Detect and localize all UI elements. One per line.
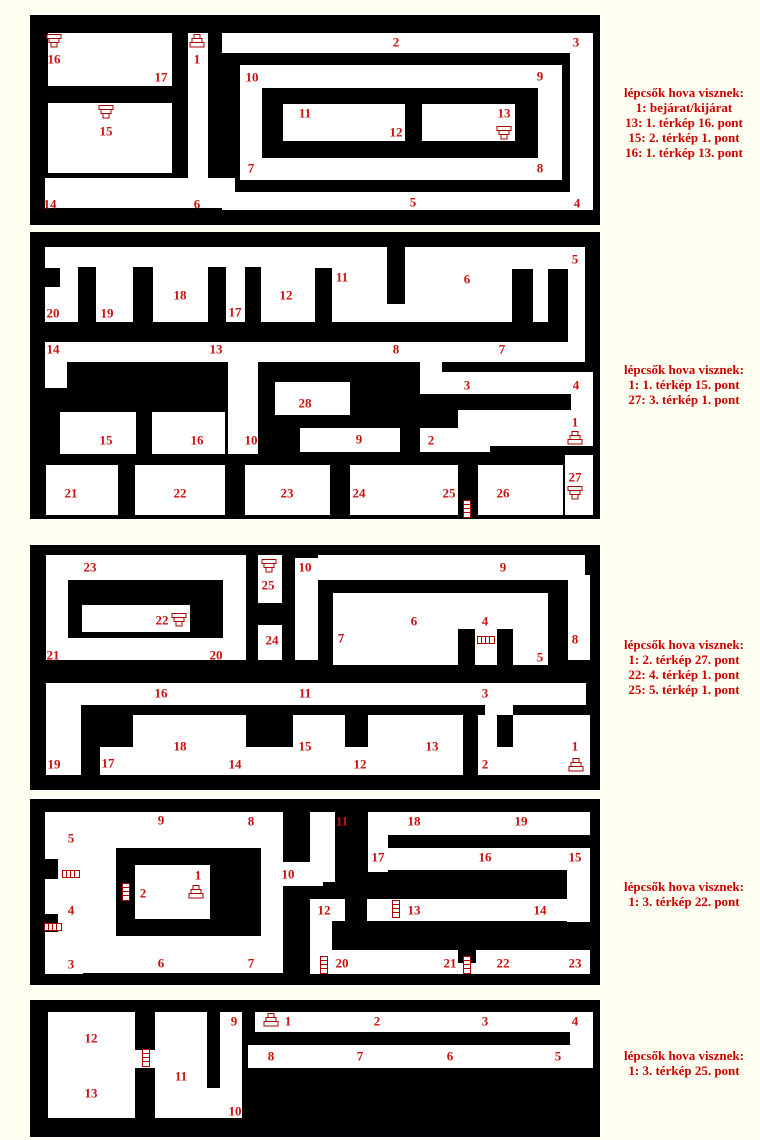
corridor-segment xyxy=(48,33,172,86)
corridor-segment xyxy=(46,555,246,580)
point-label-2: 2 xyxy=(374,1015,381,1028)
corridor-segment xyxy=(48,1012,135,1118)
door-v-icon xyxy=(463,500,471,518)
point-label-11: 11 xyxy=(299,107,311,120)
door-v-icon xyxy=(142,1049,150,1067)
corridor-segment xyxy=(45,812,83,974)
legend-block-4: lépcsők hova visznek:1: 3. térkép 22. po… xyxy=(608,879,760,909)
corridor-segment xyxy=(565,455,593,515)
legend-block-2: lépcsők hova visznek:1: 1. térkép 15. po… xyxy=(608,362,760,407)
point-label-1: 1 xyxy=(285,1015,292,1028)
point-label-2: 2 xyxy=(140,887,147,900)
point-label-17: 17 xyxy=(102,757,115,770)
legend-line: 1: 1. térkép 15. pont xyxy=(608,377,760,392)
point-label-7: 7 xyxy=(499,343,506,356)
point-label-9: 9 xyxy=(500,561,507,574)
point-label-12: 12 xyxy=(85,1032,98,1045)
wall-segment xyxy=(345,715,368,747)
point-label-13: 13 xyxy=(498,107,511,120)
wall-segment xyxy=(497,715,513,747)
corridor-segment xyxy=(333,593,548,665)
point-label-11: 11 xyxy=(336,815,348,828)
point-label-13: 13 xyxy=(408,904,421,917)
point-label-8: 8 xyxy=(572,633,579,646)
point-label-16: 16 xyxy=(48,53,61,66)
point-label-8: 8 xyxy=(393,343,400,356)
wall-segment xyxy=(315,268,332,322)
stairs-up-icon xyxy=(567,431,584,445)
stairs-down-icon xyxy=(46,34,63,48)
legend-line: lépcsők hova visznek: xyxy=(608,879,760,894)
corridor-segment xyxy=(222,33,593,53)
point-label-17: 17 xyxy=(155,71,168,84)
legend-line: lépcsők hova visznek: xyxy=(608,85,760,100)
legend-line: 16: 1. térkép 13. pont xyxy=(608,145,760,160)
point-label-13: 13 xyxy=(210,343,223,356)
point-label-10: 10 xyxy=(229,1105,242,1118)
stairs-down-icon xyxy=(261,559,278,573)
door-v-icon xyxy=(463,956,471,974)
wall-segment xyxy=(133,267,153,322)
map-panel-3: 2325102221202497645816113191718141512132… xyxy=(30,545,600,790)
door-h-icon xyxy=(62,870,80,878)
corridor-segment xyxy=(45,362,67,388)
wall-segment xyxy=(548,269,568,322)
corridor-segment xyxy=(568,320,585,344)
point-label-10: 10 xyxy=(299,561,312,574)
corridor-segment xyxy=(240,158,562,180)
point-label-15: 15 xyxy=(100,434,113,447)
map-panel-4: 5984367121011181917161512131420212223 xyxy=(30,799,600,985)
point-label-3: 3 xyxy=(482,687,489,700)
point-label-10: 10 xyxy=(245,434,258,447)
corridor-segment xyxy=(570,33,593,210)
point-label-5: 5 xyxy=(572,253,579,266)
point-label-4: 4 xyxy=(574,197,581,210)
point-label-12: 12 xyxy=(318,904,331,917)
legend-line: 15: 2. térkép 1. pont xyxy=(608,130,760,145)
point-label-15: 15 xyxy=(569,851,582,864)
door-h-icon xyxy=(44,923,62,931)
point-label-8: 8 xyxy=(537,162,544,175)
door-v-icon xyxy=(122,883,130,901)
corridor-segment xyxy=(222,192,592,210)
point-label-4: 4 xyxy=(68,904,75,917)
legend-line: 1: bejárat/kijárat xyxy=(608,100,760,115)
wall-segment xyxy=(208,267,226,322)
stairs-up-icon xyxy=(568,758,585,772)
point-label-16: 16 xyxy=(479,851,492,864)
point-label-23: 23 xyxy=(281,487,294,500)
point-label-9: 9 xyxy=(231,1015,238,1028)
point-label-21: 21 xyxy=(65,487,78,500)
point-label-19: 19 xyxy=(515,815,528,828)
wall-segment xyxy=(38,268,60,287)
corridor-segment xyxy=(240,65,562,88)
point-label-18: 18 xyxy=(174,289,187,302)
point-label-22: 22 xyxy=(174,487,187,500)
point-label-2: 2 xyxy=(428,434,435,447)
point-label-7: 7 xyxy=(357,1050,364,1063)
wall-segment xyxy=(458,629,475,665)
stairs-down-icon xyxy=(171,613,188,627)
corridor-segment xyxy=(46,465,118,515)
corridor-segment xyxy=(275,382,350,415)
legend-line: 27: 3. térkép 1. pont xyxy=(608,392,760,407)
point-label-12: 12 xyxy=(390,126,403,139)
point-label-13: 13 xyxy=(85,1087,98,1100)
point-label-14: 14 xyxy=(229,758,242,771)
point-label-1: 1 xyxy=(572,416,579,429)
corridor-segment xyxy=(46,683,586,705)
point-label-24: 24 xyxy=(353,487,366,500)
point-label-9: 9 xyxy=(537,70,544,83)
legend-line: 25: 5. térkép 1. pont xyxy=(608,682,760,697)
point-label-3: 3 xyxy=(573,36,580,49)
point-label-25: 25 xyxy=(262,579,275,592)
point-label-23: 23 xyxy=(84,561,97,574)
point-label-9: 9 xyxy=(356,433,363,446)
point-label-20: 20 xyxy=(47,307,60,320)
map-panel-2: 2019181712116514138728151610923412122232… xyxy=(30,232,600,519)
stairs-up-icon xyxy=(189,34,206,48)
point-label-21: 21 xyxy=(47,649,60,662)
point-label-6: 6 xyxy=(194,198,201,211)
point-label-11: 11 xyxy=(175,1070,187,1083)
legend-line: 13: 1. térkép 16. pont xyxy=(608,115,760,130)
point-label-16: 16 xyxy=(191,434,204,447)
point-label-6: 6 xyxy=(158,957,165,970)
point-label-19: 19 xyxy=(48,758,61,771)
wall-segment xyxy=(345,899,367,921)
stairs-up-icon xyxy=(263,1013,280,1027)
legend-block-3: lépcsők hova visznek:1: 2. térkép 27. po… xyxy=(608,637,760,697)
point-label-2: 2 xyxy=(393,36,400,49)
point-label-4: 4 xyxy=(572,1015,579,1028)
corridor-segment xyxy=(420,372,593,394)
legend-line: 22: 4. térkép 1. pont xyxy=(608,667,760,682)
point-label-3: 3 xyxy=(482,1015,489,1028)
point-label-15: 15 xyxy=(299,740,312,753)
point-label-5: 5 xyxy=(537,651,544,664)
corridor-segment xyxy=(60,412,136,454)
point-label-21: 21 xyxy=(444,957,457,970)
wall-segment xyxy=(497,629,513,665)
point-label-17: 17 xyxy=(372,851,385,864)
point-label-6: 6 xyxy=(411,615,418,628)
wall-segment xyxy=(387,247,405,304)
wall-segment xyxy=(512,269,533,322)
point-label-18: 18 xyxy=(174,740,187,753)
point-label-4: 4 xyxy=(482,615,489,628)
point-label-14: 14 xyxy=(534,904,547,917)
point-label-24: 24 xyxy=(266,634,279,647)
point-label-4: 4 xyxy=(573,379,580,392)
point-label-8: 8 xyxy=(248,815,255,828)
legend-line: lépcsők hova visznek: xyxy=(608,1048,760,1063)
door-h-icon xyxy=(477,636,495,644)
point-label-22: 22 xyxy=(156,614,169,627)
point-label-7: 7 xyxy=(338,632,345,645)
point-label-3: 3 xyxy=(68,958,75,971)
point-label-16: 16 xyxy=(155,687,168,700)
point-label-6: 6 xyxy=(447,1050,454,1063)
point-label-5: 5 xyxy=(555,1050,562,1063)
point-label-8: 8 xyxy=(268,1050,275,1063)
point-label-11: 11 xyxy=(299,687,311,700)
point-label-25: 25 xyxy=(443,487,456,500)
point-label-19: 19 xyxy=(101,307,114,320)
corridor-segment xyxy=(568,575,590,660)
wall-segment xyxy=(245,267,261,322)
point-label-14: 14 xyxy=(44,198,57,211)
point-label-20: 20 xyxy=(336,957,349,970)
door-v-icon xyxy=(320,956,328,974)
wall-segment xyxy=(30,859,58,879)
point-label-10: 10 xyxy=(246,71,259,84)
corridor-segment xyxy=(318,555,585,580)
point-label-12: 12 xyxy=(354,758,367,771)
point-label-6: 6 xyxy=(464,273,471,286)
point-label-1: 1 xyxy=(572,740,579,753)
legend-line: 1: 2. térkép 27. pont xyxy=(608,652,760,667)
wall-segment xyxy=(78,267,96,322)
corridor-segment xyxy=(248,1045,593,1068)
point-label-1: 1 xyxy=(195,869,202,882)
point-label-3: 3 xyxy=(464,379,471,392)
stairs-down-icon xyxy=(98,105,115,119)
point-label-27: 27 xyxy=(569,471,582,484)
legend-line: lépcsők hova visznek: xyxy=(608,637,760,652)
stairs-down-icon xyxy=(496,126,513,140)
corridor-segment xyxy=(478,465,563,515)
point-label-7: 7 xyxy=(248,957,255,970)
legend-block-5: lépcsők hova visznek:1: 3. térkép 25. po… xyxy=(608,1048,760,1078)
point-label-26: 26 xyxy=(497,487,510,500)
stairs-down-icon xyxy=(567,486,584,500)
point-label-17: 17 xyxy=(229,306,242,319)
point-label-9: 9 xyxy=(158,814,165,827)
legend-line: 1: 3. térkép 22. pont xyxy=(608,894,760,909)
point-label-20: 20 xyxy=(210,649,223,662)
point-label-12: 12 xyxy=(280,289,293,302)
point-label-1: 1 xyxy=(194,53,201,66)
legend-line: 1: 3. térkép 25. pont xyxy=(608,1063,760,1078)
point-label-5: 5 xyxy=(68,832,75,845)
corridor-segment xyxy=(368,812,590,835)
legend-line: lépcsők hova visznek: xyxy=(608,362,760,377)
wall-segment xyxy=(246,715,293,747)
maze-maps-page: 1617115146231091112137854201918171211651… xyxy=(0,0,760,1140)
point-label-7: 7 xyxy=(248,162,255,175)
point-label-13: 13 xyxy=(426,740,439,753)
point-label-23: 23 xyxy=(569,957,582,970)
legend-block-1: lépcsők hova visznek:1: bejárat/kijárat1… xyxy=(608,85,760,160)
point-label-14: 14 xyxy=(47,343,60,356)
point-label-18: 18 xyxy=(408,815,421,828)
stairs-up-icon xyxy=(188,885,205,899)
corridor-segment xyxy=(152,412,225,454)
point-label-11: 11 xyxy=(336,271,348,284)
map-panel-1: 1617115146231091112137854 xyxy=(30,15,600,225)
wall-segment xyxy=(100,715,133,747)
point-label-22: 22 xyxy=(497,957,510,970)
point-label-15: 15 xyxy=(100,125,113,138)
point-label-10: 10 xyxy=(282,868,295,881)
point-label-5: 5 xyxy=(410,196,417,209)
corridor-segment xyxy=(310,812,335,882)
map-panel-5: 12131191012348765 xyxy=(30,1000,600,1137)
point-label-28: 28 xyxy=(299,397,312,410)
corridor-segment xyxy=(223,580,246,660)
door-v-icon xyxy=(392,900,400,918)
wall-segment xyxy=(400,428,420,452)
point-label-2: 2 xyxy=(482,758,489,771)
corridor-segment xyxy=(255,1012,593,1032)
